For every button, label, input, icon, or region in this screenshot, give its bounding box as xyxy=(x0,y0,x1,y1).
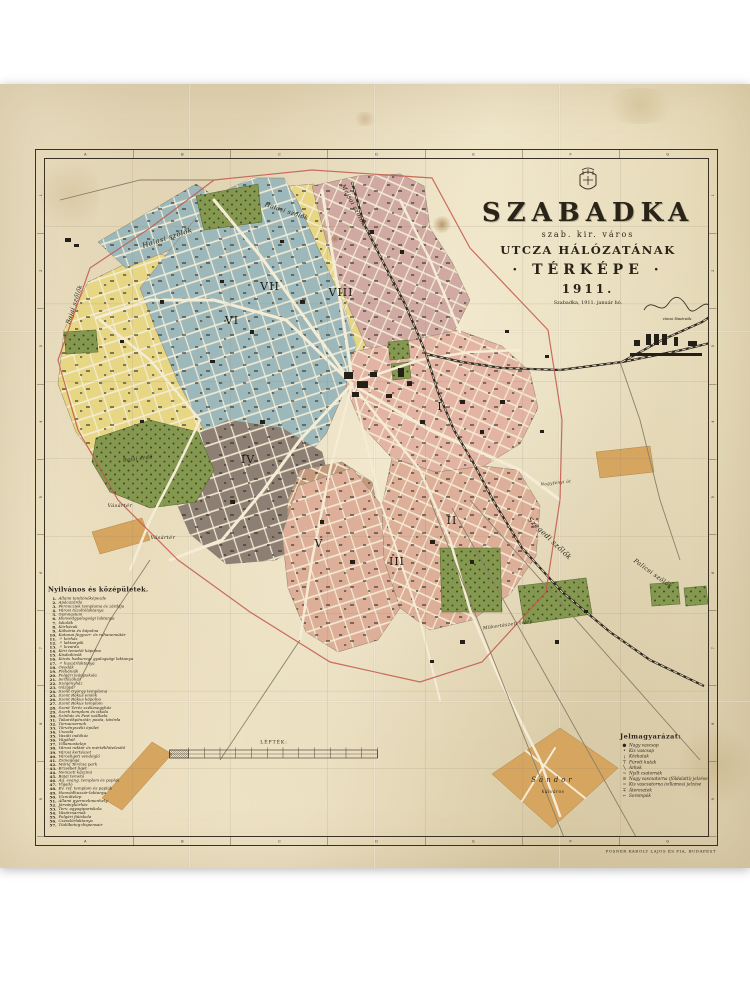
grid-label-D: D xyxy=(328,150,425,158)
legend-items: 1.Állami tanítónőképezde2.Apácazárda3.Fe… xyxy=(48,597,198,828)
symbols-items: ●Nagy vascsap•Kis vascsap¡Közkutak⊤Fúrot… xyxy=(620,743,720,799)
grid-label-7: 7 xyxy=(709,611,717,686)
grid-label-2: 2 xyxy=(37,233,45,308)
grid-label-C: C xyxy=(231,837,328,845)
symbol-item: ⌐Sorompók xyxy=(620,793,720,799)
symbol-label: Sorompók xyxy=(629,793,651,799)
signature-caption: városi főmérnök xyxy=(655,317,700,321)
map-subtitle-2: UTCZA HÁLÓZATÁNAK xyxy=(452,243,724,257)
grid-label-B: B xyxy=(134,837,231,845)
grid-label-7: 7 xyxy=(37,611,45,686)
symbol-glyph-icon: ⌐ xyxy=(620,793,629,799)
grid-label-G: G xyxy=(619,150,716,158)
grid-label-6: 6 xyxy=(37,535,45,610)
scale-bar-title: LÉPTÉK: xyxy=(166,740,382,745)
legend-public-buildings: Nyilvános és középületek. 1.Állami tanít… xyxy=(48,586,198,827)
grid-label-D: D xyxy=(328,837,425,845)
grid-top: ABCDEFG xyxy=(37,150,716,158)
map-subtitle-1: szab. kir. város xyxy=(452,230,724,239)
grid-label-1: 1 xyxy=(37,158,45,233)
legend-item-number: 57. xyxy=(48,823,57,827)
signature-scribble-icon xyxy=(642,292,712,316)
grid-label-5: 5 xyxy=(709,460,717,535)
grid-label-4: 4 xyxy=(709,384,717,459)
grid-label-G: G xyxy=(619,837,716,845)
title-block: SZABADKA szab. kir. város UTCZA HÁLÓZATÁ… xyxy=(452,166,724,310)
scale-bar: LÉPTÉK: xyxy=(166,740,382,763)
grid-label-8: 8 xyxy=(37,686,45,761)
grid-label-3: 3 xyxy=(37,309,45,384)
product-photo: Halasi szőlőkHalasi szőlőkMajsai szőlőkB… xyxy=(0,0,750,1000)
grid-label-A: A xyxy=(37,150,134,158)
grid-label-6: 6 xyxy=(709,535,717,610)
grid-label-C: C xyxy=(231,150,328,158)
map-subtitle-3: · TÉRKÉPE · xyxy=(452,262,724,278)
grid-label-A: A xyxy=(37,837,134,845)
grid-label-E: E xyxy=(425,837,522,845)
grid-label-4: 4 xyxy=(37,384,45,459)
legend-item-label: Tüdőbeteg-dispensair xyxy=(59,823,103,827)
legend-item: 57.Tüdőbeteg-dispensair xyxy=(48,823,198,827)
symbols-title: Jelmagyarázat: xyxy=(620,733,720,741)
engineer-signature: városi főmérnök xyxy=(632,292,722,325)
scale-bar-graphic xyxy=(169,746,379,760)
legend-symbols: Jelmagyarázat: ●Nagy vascsap•Kis vascsap… xyxy=(620,733,720,799)
legend-title: Nyilvános és középületek. xyxy=(48,586,198,594)
grid-label-F: F xyxy=(522,150,619,158)
grid-label-5: 5 xyxy=(37,460,45,535)
grid-left: 123456789 xyxy=(37,158,45,837)
grid-label-9: 9 xyxy=(37,762,45,837)
printer-imprint: POSNER KÁROLY LAJOS ÉS FIA, BUDAPEST xyxy=(400,849,716,854)
grid-bottom: ABCDEFG xyxy=(37,837,716,845)
grid-label-F: F xyxy=(522,837,619,845)
city-crest-icon xyxy=(574,166,602,196)
map-title: SZABADKA xyxy=(452,198,724,228)
grid-label-B: B xyxy=(134,150,231,158)
grid-label-E: E xyxy=(425,150,522,158)
